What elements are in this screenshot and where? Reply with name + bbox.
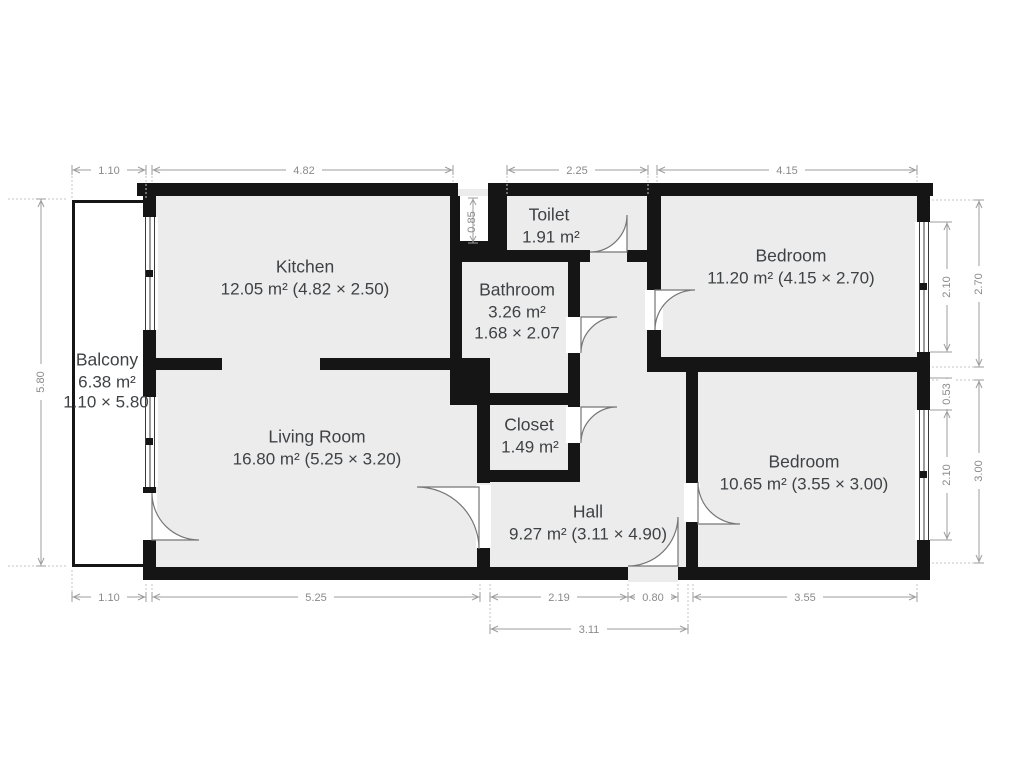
- wall-hall-stub: [477, 548, 490, 567]
- label-bathroom-size: 1.68 × 2.07: [474, 323, 560, 342]
- dim-right-window1: 2.10: [941, 276, 953, 297]
- label-living-name: Living Room: [268, 427, 365, 447]
- label-kitchen-name: Kitchen: [276, 257, 334, 277]
- wall-hall-west-1: [568, 262, 580, 317]
- window-bedroom2-tick: [920, 471, 927, 478]
- label-closet-area: 1.49 m²: [501, 437, 559, 456]
- wall-toilet-west: [488, 196, 507, 253]
- wall-right-1: [917, 196, 930, 222]
- wall-right-3: [917, 540, 930, 567]
- dim-top-kitchen: 4.82: [293, 165, 314, 177]
- wall-top-right: [488, 183, 933, 196]
- label-toilet-area: 1.91 m²: [522, 227, 580, 246]
- wall-hall-west-3: [568, 443, 580, 482]
- label-bedroom2-area: 10.65 m² (3.55 × 3.00): [720, 474, 889, 493]
- floor-plan-canvas: 1.10 4.82 2.25 4.15 1.10 5.25 2.19 0.80 …: [0, 0, 1024, 768]
- wall-kitchen-living-a: [150, 358, 222, 370]
- wall-bottom-left: [143, 567, 628, 580]
- dim-shaft: 0.85: [466, 211, 478, 232]
- label-bedroom1-name: Bedroom: [755, 246, 826, 266]
- wall-bathroom-west: [450, 262, 462, 358]
- label-hall-area: 9.27 m² (3.11 × 4.90): [509, 524, 667, 543]
- dim-right-window2: 2.10: [941, 464, 953, 485]
- wall-bedroom2-west-a: [686, 368, 698, 483]
- door-closet-gap: [566, 407, 582, 443]
- dim-right-bedroom2: 3.00: [973, 460, 985, 481]
- floor-plan-page: 1.10 4.82 2.25 4.15 1.10 5.25 2.19 0.80 …: [0, 0, 1024, 768]
- window-kitchen-tick: [146, 270, 153, 277]
- wall-bathroom-south: [488, 393, 580, 405]
- wall-right-2: [917, 352, 930, 410]
- wall-left-3: [143, 487, 156, 493]
- label-closet-name: Closet: [504, 415, 554, 435]
- dim-bottom-balcony: 1.10: [98, 592, 119, 604]
- label-bedroom1-area: 11.20 m² (4.15 × 2.70): [707, 268, 874, 287]
- label-kitchen-area: 12.05 m² (4.82 × 2.50): [221, 279, 390, 298]
- wall-left-4: [143, 540, 156, 567]
- dim-top-bedroom: 4.15: [776, 165, 797, 177]
- window-bedroom1-tick: [920, 283, 927, 290]
- dim-bottom-hall: 2.19: [548, 592, 569, 604]
- dim-bottom-bedroom: 3.55: [794, 592, 815, 604]
- label-balcony-size: 1.10 × 5.80: [63, 392, 149, 411]
- door-bathroom-gap: [566, 317, 582, 353]
- dim-right-pier: 0.53: [941, 383, 953, 404]
- balcony-wall-left: [72, 200, 75, 567]
- label-bedroom2-name: Bedroom: [768, 452, 839, 472]
- wall-bedroom2-west-b: [686, 522, 698, 567]
- entrance-threshold: [628, 567, 678, 582]
- dim-right-bedroom1: 2.70: [973, 273, 985, 294]
- window-living-tick: [146, 438, 153, 445]
- wall-bedroom1-west-a: [647, 196, 661, 290]
- label-living-area: 16.80 m² (5.25 × 3.20): [233, 449, 402, 468]
- wall-junction-block: [450, 358, 490, 405]
- dim-bottom-hall-total: 3.11: [579, 624, 600, 636]
- label-balcony-area: 6.38 m²: [78, 372, 136, 391]
- label-hall-name: Hall: [573, 502, 603, 522]
- wall-left-1: [143, 196, 156, 217]
- dim-left-height: 5.80: [35, 371, 47, 392]
- dim-top-toilet: 2.25: [566, 165, 587, 177]
- wall-top-left: [137, 183, 458, 196]
- wall-bottom-right: [678, 567, 930, 580]
- balcony-wall-bottom: [72, 564, 143, 567]
- wall-hall-west-2: [568, 353, 580, 407]
- balcony-wall-top: [72, 200, 143, 203]
- dim-bottom-living: 5.25: [305, 592, 326, 604]
- dim-top-balcony: 1.10: [98, 165, 119, 177]
- label-balcony-name: Balcony: [76, 350, 139, 370]
- wall-closet-south: [488, 470, 580, 482]
- label-bathroom-name: Bathroom: [479, 280, 555, 300]
- wall-toilet-south-a: [450, 250, 590, 262]
- label-toilet-name: Toilet: [529, 205, 570, 225]
- dim-bottom-door: 0.80: [642, 592, 663, 604]
- label-bathroom-area: 3.26 m²: [488, 302, 546, 321]
